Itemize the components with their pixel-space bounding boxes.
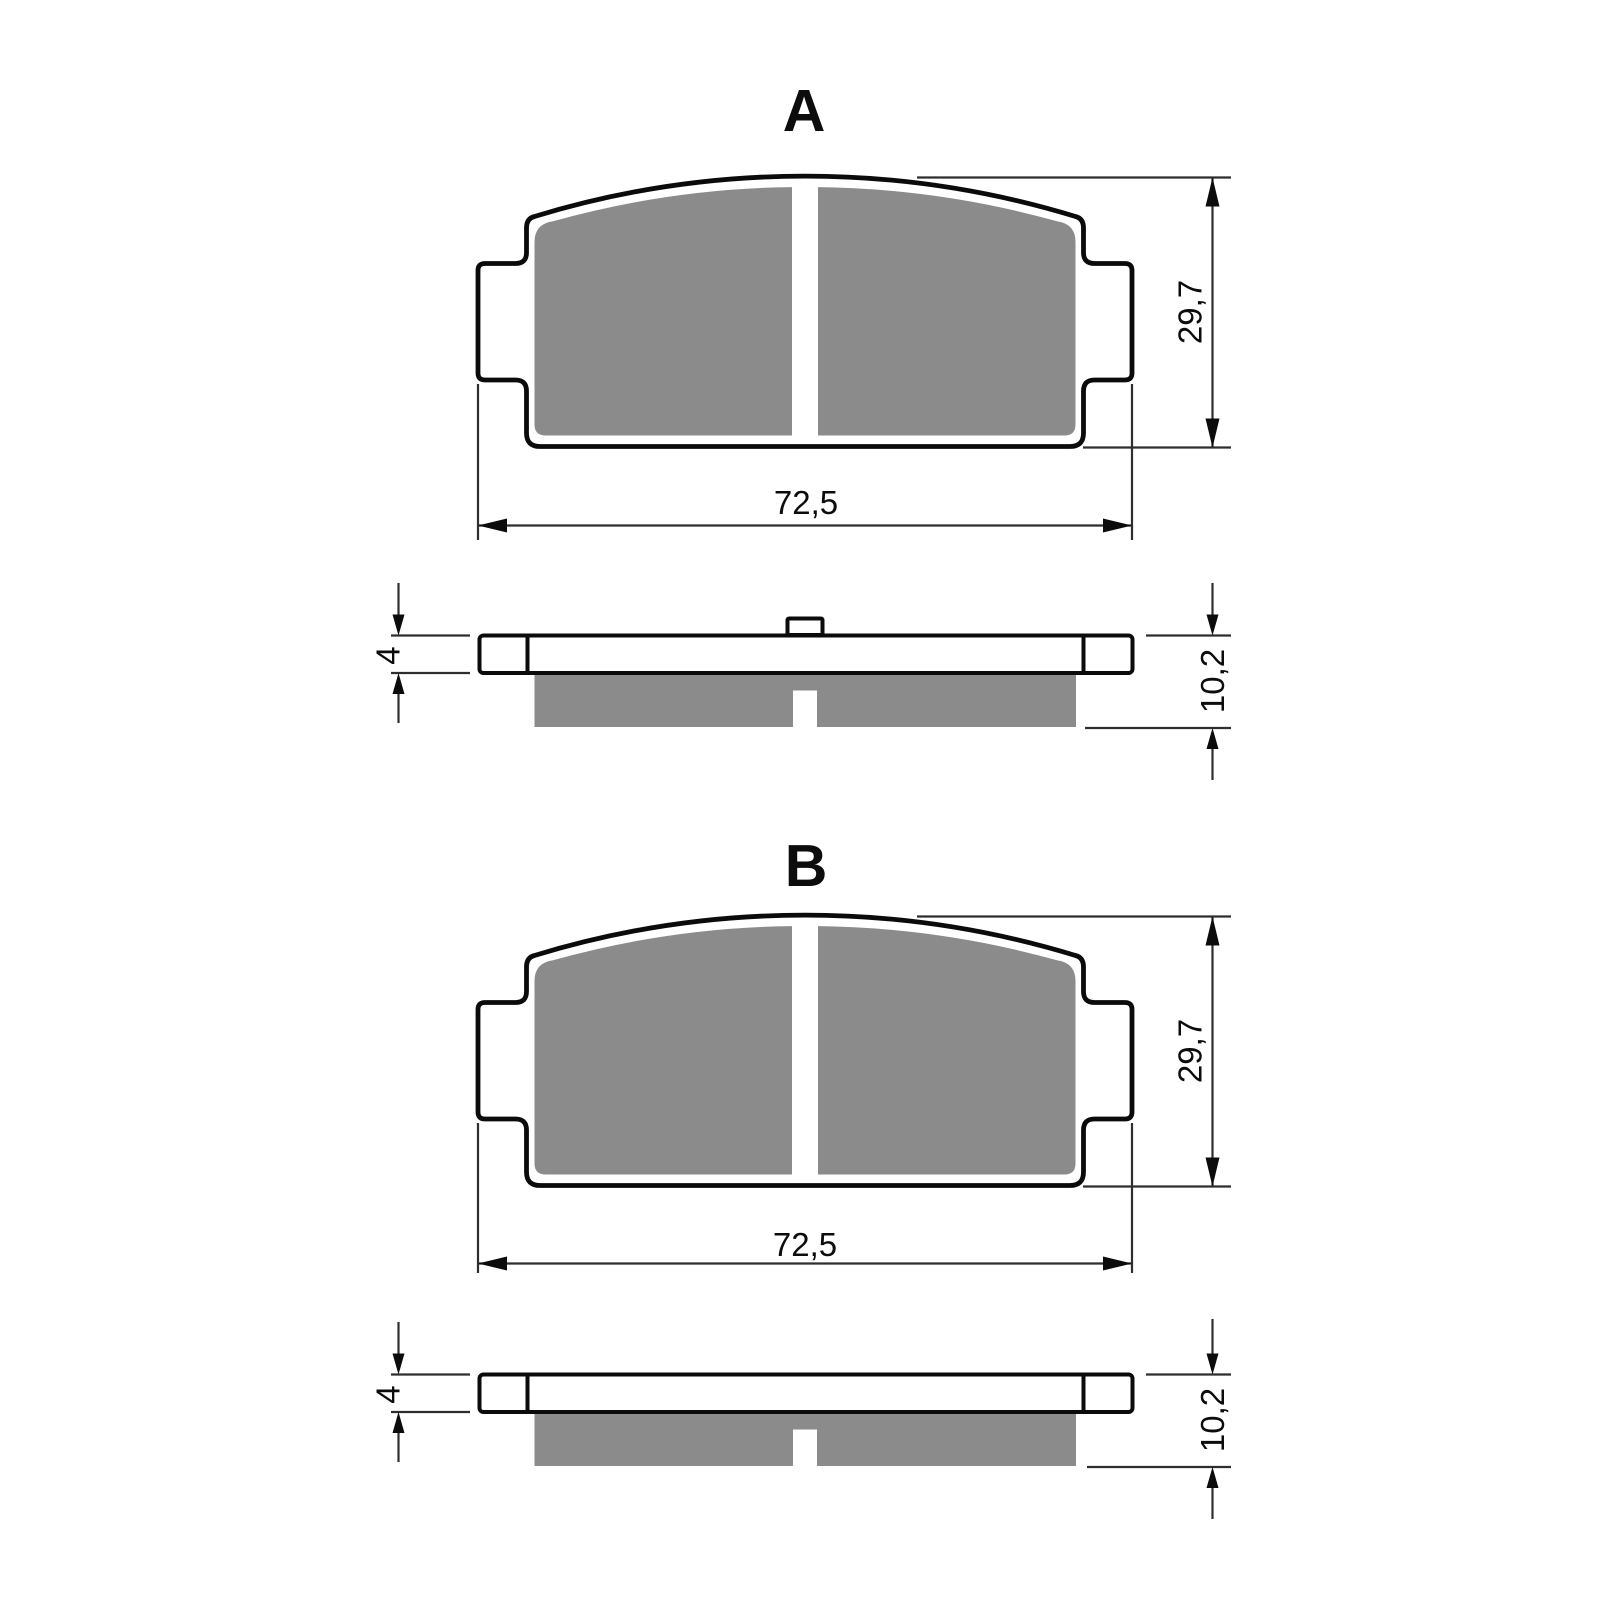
svg-text:72,5: 72,5 [774,484,838,521]
svg-text:B: B [785,833,828,899]
svg-text:29,7: 29,7 [1172,280,1209,344]
svg-text:A: A [783,78,826,144]
svg-text:4: 4 [370,1385,407,1403]
svg-text:10,2: 10,2 [1194,649,1231,713]
svg-text:10,2: 10,2 [1194,1388,1231,1452]
svg-text:72,5: 72,5 [773,1226,837,1263]
svg-text:29,7: 29,7 [1172,1019,1209,1083]
svg-text:4: 4 [370,646,407,664]
